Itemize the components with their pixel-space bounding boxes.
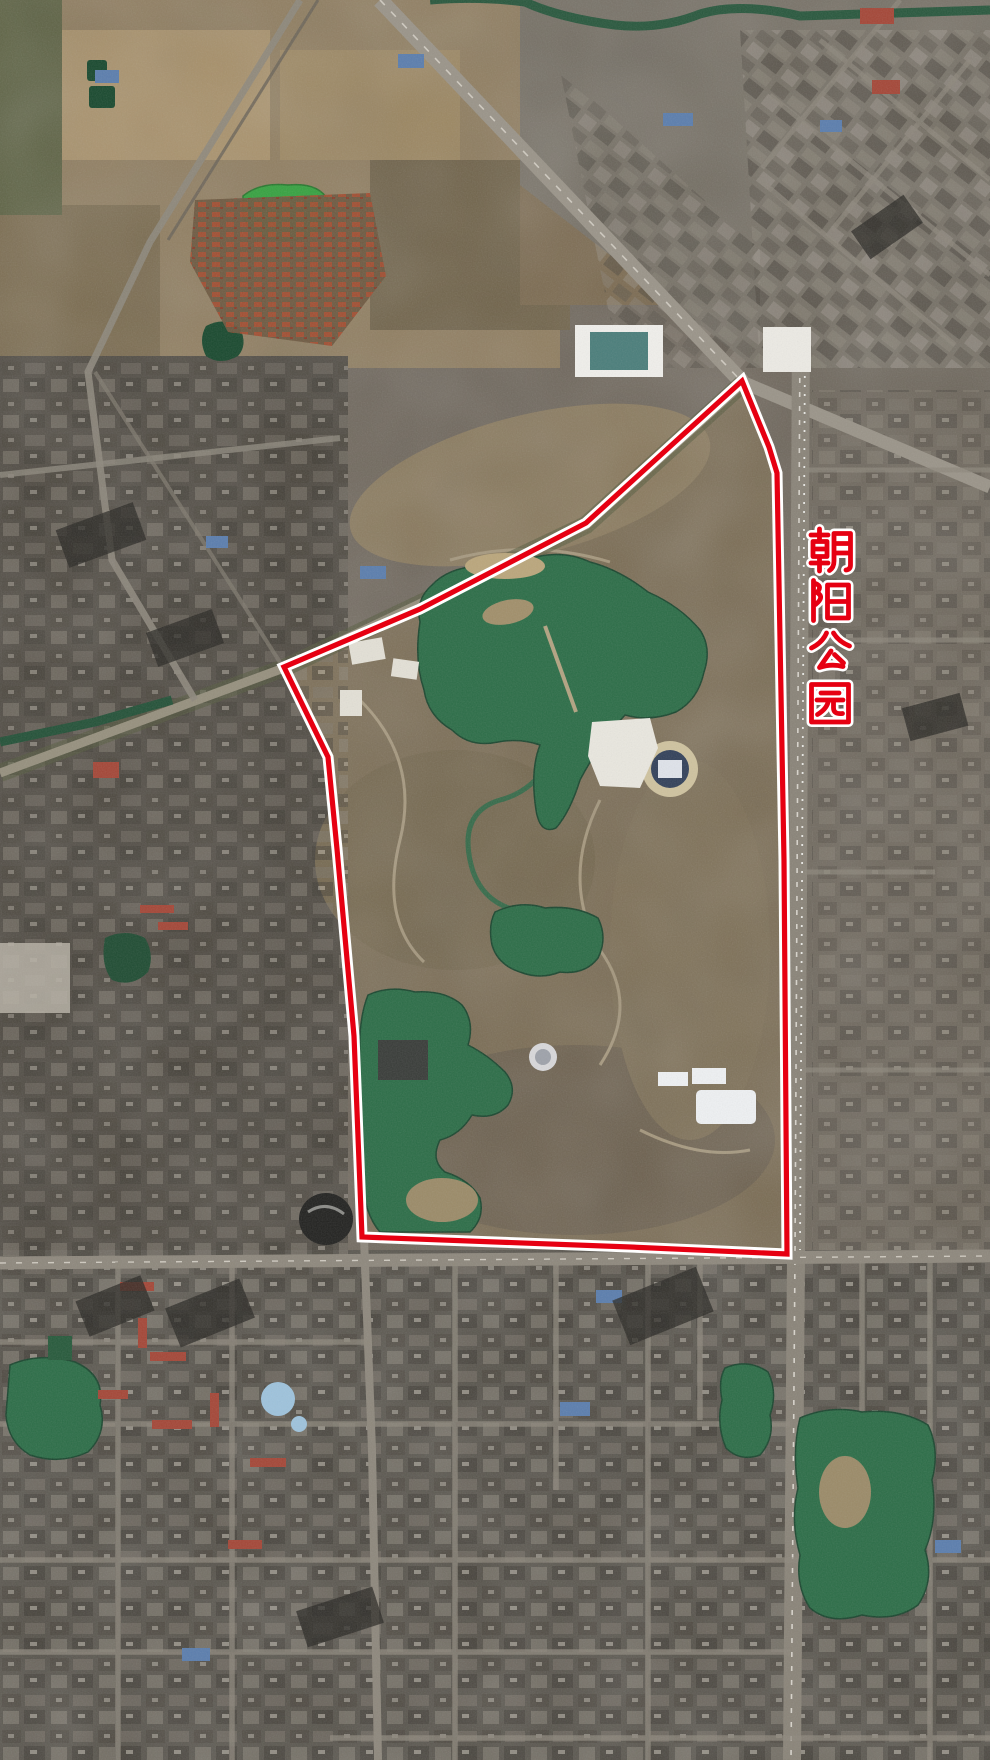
satellite-imagery <box>0 0 990 1760</box>
grain-overlay <box>0 0 990 1760</box>
satellite-map: 朝阳公园 <box>0 0 990 1760</box>
